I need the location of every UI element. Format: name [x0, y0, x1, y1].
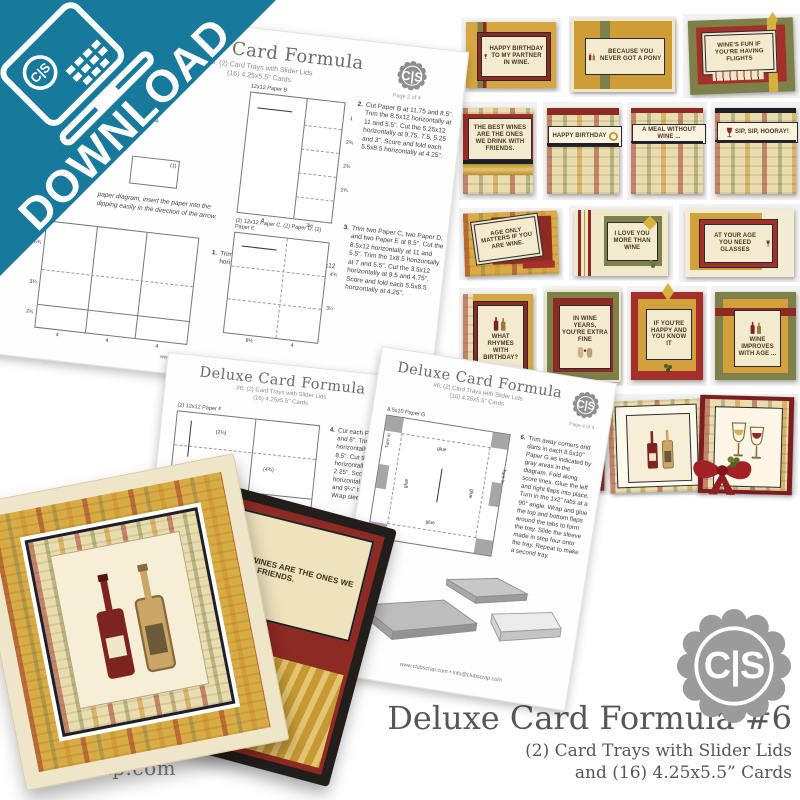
- inset-diagram: (1): [129, 156, 180, 189]
- sentiment-panel: THE BEST WINES ARE THE ONES WE DRINK WIT…: [469, 119, 531, 159]
- wine-bottles-icon: [641, 423, 677, 472]
- greeting-card: HAPPY BIRTHDAY TO MY PARTNER IN WINE.: [466, 22, 556, 87]
- greeting-card: SIP, SIP, HOORAY!: [715, 108, 795, 194]
- sentiment-panel: BECAUSE YOU NEVER GOT A PONY: [586, 39, 664, 75]
- card-photo-tile: HAPPY BIRTHDAY TO MY PARTNER IN WINE.: [461, 18, 561, 92]
- gold-leaf-icon: [764, 12, 781, 29]
- sentiment-panel: WHAT RHYMES WITH BIRTHDAY?: [478, 306, 523, 370]
- step-3: 3.Trim two Paper C, two Paper D, and two…: [336, 224, 447, 303]
- card-photo-tile: IF YOU'RE HAPPY AND YOU KNOW IT: [627, 286, 707, 386]
- toast-figures-icon: [576, 345, 594, 358]
- card-photo-tile: WINE IMPROVES WITH AGE ...: [711, 286, 800, 386]
- card-sentiment: HAPPY BIRTHDAY: [552, 133, 606, 140]
- gold-leaf-icon: [661, 283, 675, 301]
- greeting-card: AGE ONLY MATTERS IF YOU ARE WINE.: [463, 211, 559, 278]
- card-accent: [463, 175, 533, 194]
- grapes-icon: [727, 455, 743, 468]
- wine-glass-icon: [726, 127, 733, 138]
- card-wine-glasses: [698, 395, 795, 495]
- wine-bottles-icon: [492, 315, 510, 332]
- wine-bottles-icon: [73, 553, 186, 686]
- card-accent: [578, 210, 581, 275]
- cs-seal-icon: C|S: [570, 390, 601, 421]
- card-photo-tile: AGE ONLY MATTERS IF YOU ARE WINE.: [459, 208, 563, 280]
- card-accent: [631, 141, 703, 144]
- glasses-row-accent: [713, 70, 764, 81]
- paper-b-diagram: 1 2¾ 2¾ 2¾ 8 3½: [236, 92, 345, 224]
- card-accent: [631, 108, 703, 113]
- card-accent: [547, 108, 619, 115]
- card-photo-tile: HAPPY BIRTHDAY: [543, 102, 623, 200]
- greeting-card: AT YOUR AGE YOU NEED GLASSES: [685, 209, 794, 278]
- cs-logo-badge: C|S: [676, 608, 792, 724]
- sentiment-panel: AT YOUR AGE YOU NEED GLASSES: [705, 225, 772, 262]
- product-subtitle: (2) Card Trays with Slider Lids and (16)…: [300, 740, 792, 784]
- product-subtitle-line2: and (16) 4.25x5.5” Cards: [300, 762, 792, 784]
- card-accent: [715, 140, 795, 143]
- greeting-card: BECAUSE YOU NEVER GOT A PONY: [571, 18, 674, 93]
- card-photo-tile: BECAUSE YOU NEVER GOT A PONY: [569, 16, 677, 94]
- red-tag: [523, 261, 555, 269]
- sentiment-panel: WINE'S FUN IF YOU'RE HAVING FLIGHTS: [705, 34, 773, 71]
- gold-ribbon: [463, 164, 533, 175]
- greeting-card: IF YOU'RE HAPPY AND YOU KNOW IT: [631, 292, 703, 380]
- bottles-panel: [627, 414, 691, 483]
- paper-a-diagram: 5¾ 3¾ 2¾ 4 4 4: [34, 220, 199, 345]
- card-photo-tile: THE BEST WINES ARE THE ONES WE DRINK WIT…: [459, 102, 537, 200]
- card-accent: [547, 143, 619, 146]
- card-sentiment: SIP, SIP, HOORAY!: [735, 129, 789, 136]
- card-sentiment: IF YOU'RE HAPPY AND YOU KNOW IT: [649, 321, 689, 349]
- card-photo-tile: WINE'S FUN IF YOU'RE HAVING FLIGHTS: [683, 14, 800, 98]
- card-sentiment: WHAT RHYMES WITH BIRTHDAY?: [480, 334, 521, 362]
- product-subtitle-line1: (2) Card Trays with Slider Lids: [300, 740, 792, 762]
- step-2: 2.Cut Paper B at 11.75 and 8.5". Trim th…: [352, 101, 459, 163]
- card-accent: [715, 108, 795, 113]
- step-6: 6.Trim away corners and darts in each 8.…: [502, 434, 598, 566]
- wine-bottles-icon: [749, 320, 765, 335]
- card-sentiment: THE BEST WINES ARE THE ONES WE DRINK WIT…: [471, 125, 529, 153]
- card-photo-tile: SIP, SIP, HOORAY!: [711, 102, 800, 200]
- finished-trays-photo: THE BEST WINES ARE THE ONES WE DRINK WIT…: [0, 460, 372, 795]
- cs-seal-icon: C|S: [396, 59, 429, 92]
- card-sentiment: HAPPY BIRTHDAY TO MY PARTNER IN WINE.: [489, 46, 543, 67]
- card-sentiment: WINE IMPROVES WITH AGE ...: [737, 337, 779, 358]
- card-photo-tile: AT YOUR AGE YOU NEED GLASSES: [679, 204, 800, 282]
- sentiment-panel: HAPPY BIRTHDAY TO MY PARTNER IN WINE.: [482, 37, 545, 76]
- card-sentiment: I LOVE YOU MORE THAN WINE: [610, 231, 655, 252]
- card-accent: [584, 210, 586, 275]
- sentiment-panel: IF YOU'RE HAPPY AND YOU KNOW IT: [647, 310, 691, 360]
- card-sentiment: WINE'S FUN IF YOU'RE HAVING FLIGHTS: [707, 41, 771, 64]
- greeting-card: I LOVE YOU MORE THAN WINE: [574, 210, 668, 275]
- card-sentiment: AGE ONLY MATTERS IF YOU ARE WINE.: [478, 225, 536, 253]
- greeting-card: A MEAL WITHOUT WINE ...: [631, 108, 703, 194]
- greeting-card: WINE'S FUN IF YOU'RE HAVING FLIGHTS: [688, 17, 796, 95]
- sentiment-panel: WINE IMPROVES WITH AGE ...: [735, 311, 781, 366]
- svg-text:C|S: C|S: [27, 60, 53, 86]
- card-sentiment: A MEAL WITHOUT WINE ...: [635, 127, 703, 141]
- card-photo-tile: IN WINE YEARS, YOU'RE EXTRA FINE: [543, 286, 623, 386]
- greeting-card: IN WINE YEARS, YOU'RE EXTRA FINE: [545, 290, 621, 382]
- page-label: Page 2 of 4: [392, 93, 421, 102]
- wine-bottles-icon: [588, 49, 597, 64]
- ribbon-bow-icon: [686, 452, 759, 498]
- card-photo-tile: I LOVE YOU MORE THAN WINE: [569, 206, 673, 280]
- gold-wreath-icon: [609, 132, 618, 141]
- greeting-card: HAPPY BIRTHDAY: [547, 108, 619, 194]
- greeting-card: WINE IMPROVES WITH AGE ...: [715, 292, 795, 380]
- grapes-icon: [648, 259, 660, 269]
- product-promo-image: HAPPY BIRTHDAY TO MY PARTNER IN WINE. BE…: [0, 0, 800, 800]
- greeting-card: THE BEST WINES ARE THE ONES WE DRINK WIT…: [463, 108, 533, 194]
- wine-glass-icon: [766, 237, 770, 250]
- card-sentiment: IN WINE YEARS, YOU'RE EXTRA FINE: [562, 316, 608, 344]
- sentiment-panel: IN WINE YEARS, YOU'RE EXTRA FINE: [560, 306, 610, 368]
- grapes-icon: [663, 363, 675, 373]
- page-label: Page 4 of 4: [569, 421, 595, 431]
- card-photo-tile: A MEAL WITHOUT WINE ...: [627, 102, 707, 200]
- card-sentiment: AT YOUR AGE YOU NEED GLASSES: [707, 233, 764, 254]
- card-accent: [463, 108, 533, 114]
- paper-cde-diagram: 4¾ 3¼ 8½ 4: [223, 232, 330, 344]
- wine-glass-icon: [484, 50, 487, 63]
- card-accent: [588, 210, 591, 275]
- card-sentiment: BECAUSE YOU NEVER GOT A PONY: [599, 49, 662, 63]
